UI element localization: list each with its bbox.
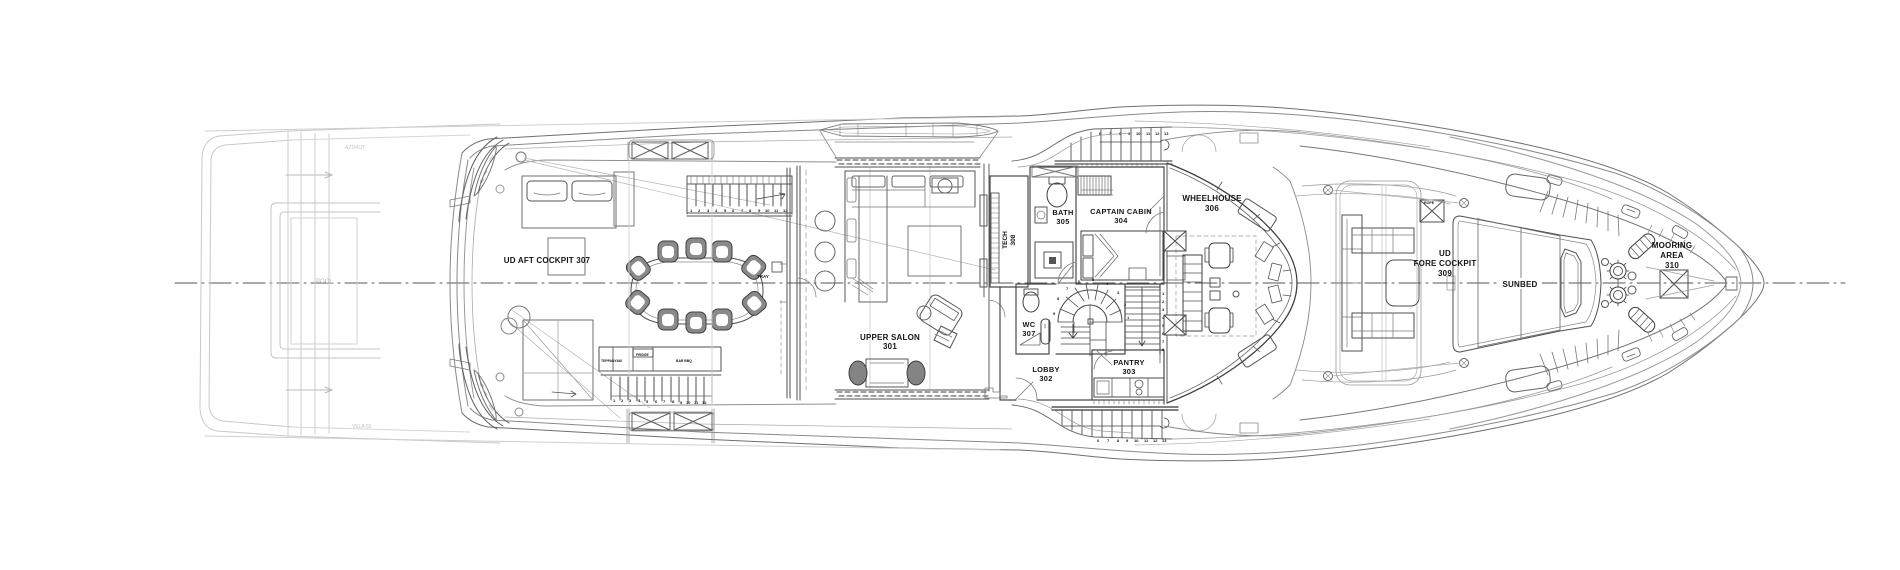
svg-text:6: 6 [732, 208, 735, 213]
svg-text:11: 11 [694, 400, 699, 405]
svg-text:9: 9 [758, 208, 761, 213]
svg-text:9: 9 [680, 400, 683, 405]
svg-text:2: 2 [1162, 299, 1165, 304]
svg-text:UD AFT COCKPIT 307: UD AFT COCKPIT 307 [504, 256, 591, 265]
svg-text:8: 8 [749, 208, 752, 213]
svg-text:2: 2 [698, 208, 701, 213]
svg-text:3: 3 [1162, 307, 1165, 312]
svg-text:10: 10 [1134, 438, 1139, 443]
svg-text:8: 8 [1117, 438, 1120, 443]
svg-text:6: 6 [655, 399, 658, 404]
svg-text:13: 13 [1164, 131, 1169, 136]
svg-text:1: 1 [1162, 291, 1165, 296]
svg-text:VELA 50: VELA 50 [352, 424, 372, 430]
svg-text:TECH: TECH [1002, 231, 1009, 249]
svg-text:2: 2 [621, 398, 624, 403]
svg-text:2: 2 [1124, 302, 1127, 307]
svg-text:LOBBY: LOBBY [1032, 365, 1059, 374]
svg-text:310: 310 [1665, 261, 1679, 270]
svg-text:AZ1MUT: AZ1MUT [345, 145, 365, 151]
svg-text:MOORING: MOORING [1652, 241, 1693, 250]
svg-text:9: 9 [1126, 438, 1129, 443]
svg-text:WC: WC [1023, 320, 1036, 329]
svg-text:WHEELHOUSE: WHEELHOUSE [1182, 194, 1242, 203]
svg-text:12: 12 [702, 400, 707, 405]
svg-text:7: 7 [1162, 339, 1165, 344]
svg-text:FORE COCKPIT: FORE COCKPIT [1414, 259, 1477, 268]
svg-text:3: 3 [1117, 290, 1120, 295]
svg-text:9: 9 [1053, 311, 1056, 316]
svg-text:BATH: BATH [1052, 208, 1073, 217]
svg-text:308: 308 [1010, 234, 1017, 245]
svg-text:302: 302 [1039, 374, 1052, 383]
svg-text:305: 305 [1056, 217, 1069, 226]
svg-text:6: 6 [1097, 438, 1100, 443]
svg-text:3: 3 [707, 208, 710, 213]
svg-text:5: 5 [646, 399, 649, 404]
svg-text:1: 1 [690, 208, 693, 213]
svg-text:8: 8 [672, 399, 675, 404]
svg-text:AREA: AREA [1660, 251, 1683, 260]
svg-text:UD: UD [1439, 249, 1451, 258]
svg-text:PANTRY: PANTRY [1113, 358, 1144, 367]
svg-text:3: 3 [629, 398, 632, 403]
svg-text:7: 7 [1109, 131, 1112, 136]
svg-text:10: 10 [765, 208, 770, 213]
svg-text:SUNBED: SUNBED [1503, 280, 1538, 289]
svg-text:4: 4 [715, 208, 718, 213]
svg-text:ROPE: ROPE [1424, 201, 1435, 205]
svg-text:303: 303 [1122, 367, 1135, 376]
svg-text:306: 306 [1205, 204, 1219, 213]
svg-text:7: 7 [1066, 286, 1069, 291]
svg-text:1: 1 [613, 398, 616, 403]
svg-text:301: 301 [883, 342, 897, 351]
svg-text:11: 11 [1146, 131, 1151, 136]
svg-text:309: 309 [1438, 269, 1452, 278]
svg-text:7: 7 [741, 208, 744, 213]
svg-text:307: 307 [1022, 329, 1035, 338]
svg-text:UPPER SALON: UPPER SALON [860, 333, 920, 342]
svg-text:10: 10 [686, 400, 691, 405]
svg-text:4: 4 [638, 398, 641, 403]
svg-text:10: 10 [1136, 131, 1141, 136]
svg-text:7: 7 [1107, 438, 1110, 443]
svg-text:TRAY: TRAY [757, 274, 769, 279]
svg-text:304: 304 [1114, 216, 1128, 225]
svg-text:BAR BBQ: BAR BBQ [676, 359, 692, 363]
svg-text:7: 7 [663, 399, 666, 404]
svg-text:8: 8 [1057, 296, 1060, 301]
svg-text:POOL: POOL [316, 279, 333, 285]
svg-text:TEPPANYAKI: TEPPANYAKI [601, 359, 622, 363]
svg-text:11: 11 [774, 208, 779, 213]
svg-text:FRIDGE: FRIDGE [636, 353, 650, 357]
svg-text:1: 1 [1127, 315, 1130, 320]
svg-text:12: 12 [1155, 131, 1160, 136]
svg-text:CAPTAIN CABIN: CAPTAIN CABIN [1090, 207, 1152, 216]
svg-text:5: 5 [724, 208, 727, 213]
